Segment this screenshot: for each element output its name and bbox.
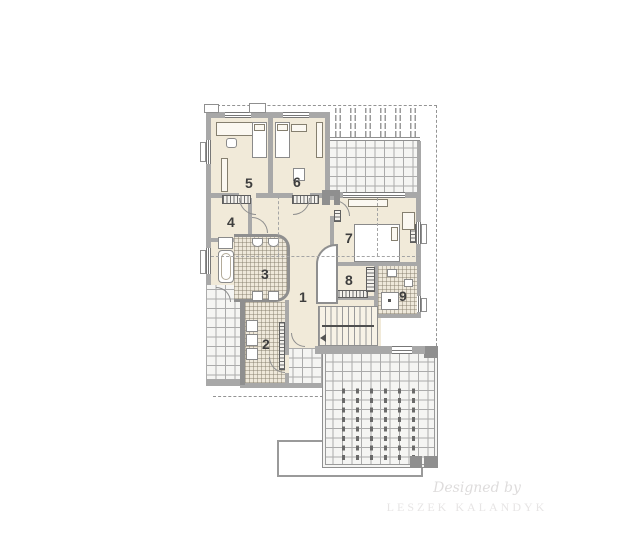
shelf-room7 [348,199,388,207]
section-line-horizontal [211,256,420,257]
window-left-upper [206,140,211,164]
chimney [249,103,266,113]
terrace-right-wall [417,141,421,196]
pillow-room6 [277,124,288,131]
window-left-lower [206,248,211,274]
pillow-room7 [391,227,398,241]
roof-corner-block [424,456,437,467]
pillow-room5 [254,124,265,131]
toilet [252,291,263,301]
washer [246,320,258,332]
lower-roof-stripes [342,388,422,460]
roof-stripe [370,388,373,460]
room-label-8: 8 [345,273,353,287]
sink-9 [387,269,397,277]
toilet-9 [404,279,413,287]
roof-stripe [412,388,415,460]
sink [252,238,263,247]
utility-sink [246,348,258,360]
wall-room6-terrace [325,112,330,196]
roof-stripe [342,388,345,460]
terrace-tiles [327,141,420,196]
window-room6 [283,112,309,118]
wall-divider-5-6 [268,118,273,196]
left-roof-bottom-wall [206,379,240,386]
room-label-1: 1 [299,290,307,304]
bathtub-inner [221,253,231,280]
watermark-designed-by: Designed by [412,480,542,496]
stair-rail [322,325,374,327]
eave-dashed-right [436,105,437,346]
roof-stripe [384,388,387,460]
dryer [246,334,258,346]
desk-room5 [216,122,253,136]
window-room5 [225,112,251,118]
chimney [204,104,219,113]
window-stair-band [392,346,412,354]
wardrobe-room6 [316,122,323,158]
watermark-designer-name: LESZEK KALANDYK [382,500,552,515]
window-sill [421,224,427,244]
floor-plan-canvas: 1 2 3 4 5 6 7 8 9 Designed by LESZEK KAL… [0,0,638,556]
bath-cabinet [218,237,233,249]
section-line-vertical-1 [278,196,279,256]
chair-room5 [226,138,237,148]
window-sill [200,250,206,274]
wall-room9-south [374,314,421,318]
hall-bottom-wall [240,383,323,388]
eave-dashed-bottom-left [213,396,323,397]
stairwell-void [316,244,338,304]
room-label-3: 3 [261,267,269,281]
shelf-room6 [291,124,307,132]
room-label-7: 7 [345,231,353,245]
room-label-6: 6 [293,175,301,189]
roof-stripe [356,388,359,460]
section-line-vertical-2 [377,198,378,256]
roof-corner-block [410,456,422,467]
pergola-hatch-band [330,108,420,139]
toilet [268,291,279,301]
roof-corner-block [424,347,437,358]
window-sill [421,298,427,312]
room-label-9: 9 [399,289,407,303]
wardrobe-room5 [221,158,228,192]
stair-direction-arrow [320,334,326,342]
door-opening-room2 [285,355,289,373]
roof-stripe [398,388,401,460]
room-label-2: 2 [262,337,270,351]
terrace-glass-door [343,192,405,198]
room-label-4: 4 [227,215,235,229]
room-label-5: 5 [245,176,253,190]
window-sill [200,142,206,162]
wardrobe-shelf-hatch [334,290,368,298]
wardrobe-shelf-hatch [366,267,375,292]
wardrobe-room7 [402,212,415,230]
shower-drain [388,299,391,302]
